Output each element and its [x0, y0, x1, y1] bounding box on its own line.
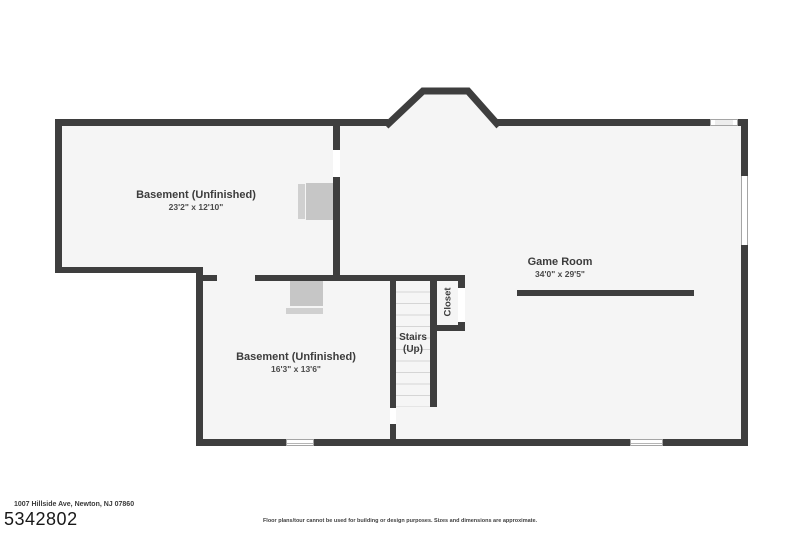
room-name: Game Room: [528, 256, 593, 269]
door-opening-basement: [217, 275, 255, 281]
wall-notch: [55, 267, 203, 273]
door-opening-divider: [333, 150, 340, 177]
wall-bottom: [196, 439, 748, 446]
stairs-label: Stairs (Up): [399, 332, 427, 356]
exterior-notch: [0, 273, 196, 473]
room-dims: 23'2" x 12'10": [136, 202, 256, 213]
wall-stairs-right: [430, 281, 437, 407]
window-cap: [733, 120, 737, 125]
floor-plan: Basement (Unfinished) 23'2" x 12'10" Gam…: [0, 0, 800, 533]
wall-stairs-left: [390, 281, 396, 408]
listing-id: 5342802: [4, 509, 78, 530]
appliance-strip-lower: [286, 308, 323, 314]
disclaimer-text: Floor plans/tour cannot be used for buil…: [263, 518, 537, 524]
room-label-game-room: Game Room 34'0" x 29'5": [528, 256, 593, 280]
wall-left: [55, 119, 62, 273]
window-mullion: [287, 443, 313, 444]
room-name: Basement (Unfinished): [236, 351, 356, 364]
window-bottom-left: [286, 439, 314, 446]
property-address: 1007 Hillside Ave, Newton, NJ 07860: [14, 501, 134, 508]
stairs-name: Stairs: [399, 332, 427, 344]
window-bottom-right: [630, 439, 663, 446]
door-opening-closet: [458, 288, 465, 322]
wall-right: [741, 119, 748, 446]
wall-top-left: [55, 119, 388, 126]
appliance-strip-upper: [298, 184, 305, 219]
room-dims: 16'3" x 13'6": [236, 364, 356, 375]
room-dims: 34'0" x 29'5": [528, 269, 593, 280]
wall-stairs-left-stub: [390, 424, 396, 439]
window-cap: [711, 120, 715, 125]
stairs-direction: (Up): [399, 344, 427, 356]
window-top: [710, 119, 738, 126]
room-name: Basement (Unfinished): [136, 189, 256, 202]
window-right: [741, 176, 748, 245]
closet-label: Closet: [443, 287, 454, 316]
wall-left-lower: [196, 267, 203, 446]
appliance-lower: [290, 281, 323, 306]
room-label-basement-lower: Basement (Unfinished) 16'3" x 13'6": [236, 351, 356, 375]
wall-beam-game-room: [517, 290, 694, 296]
window-mullion: [631, 443, 662, 444]
bay-bump: [376, 82, 506, 130]
wall-closet-bottom: [430, 325, 465, 331]
appliance-upper: [306, 183, 333, 220]
room-label-basement-upper: Basement (Unfinished) 23'2" x 12'10": [136, 189, 256, 213]
door-opening-stairs: [390, 408, 396, 424]
